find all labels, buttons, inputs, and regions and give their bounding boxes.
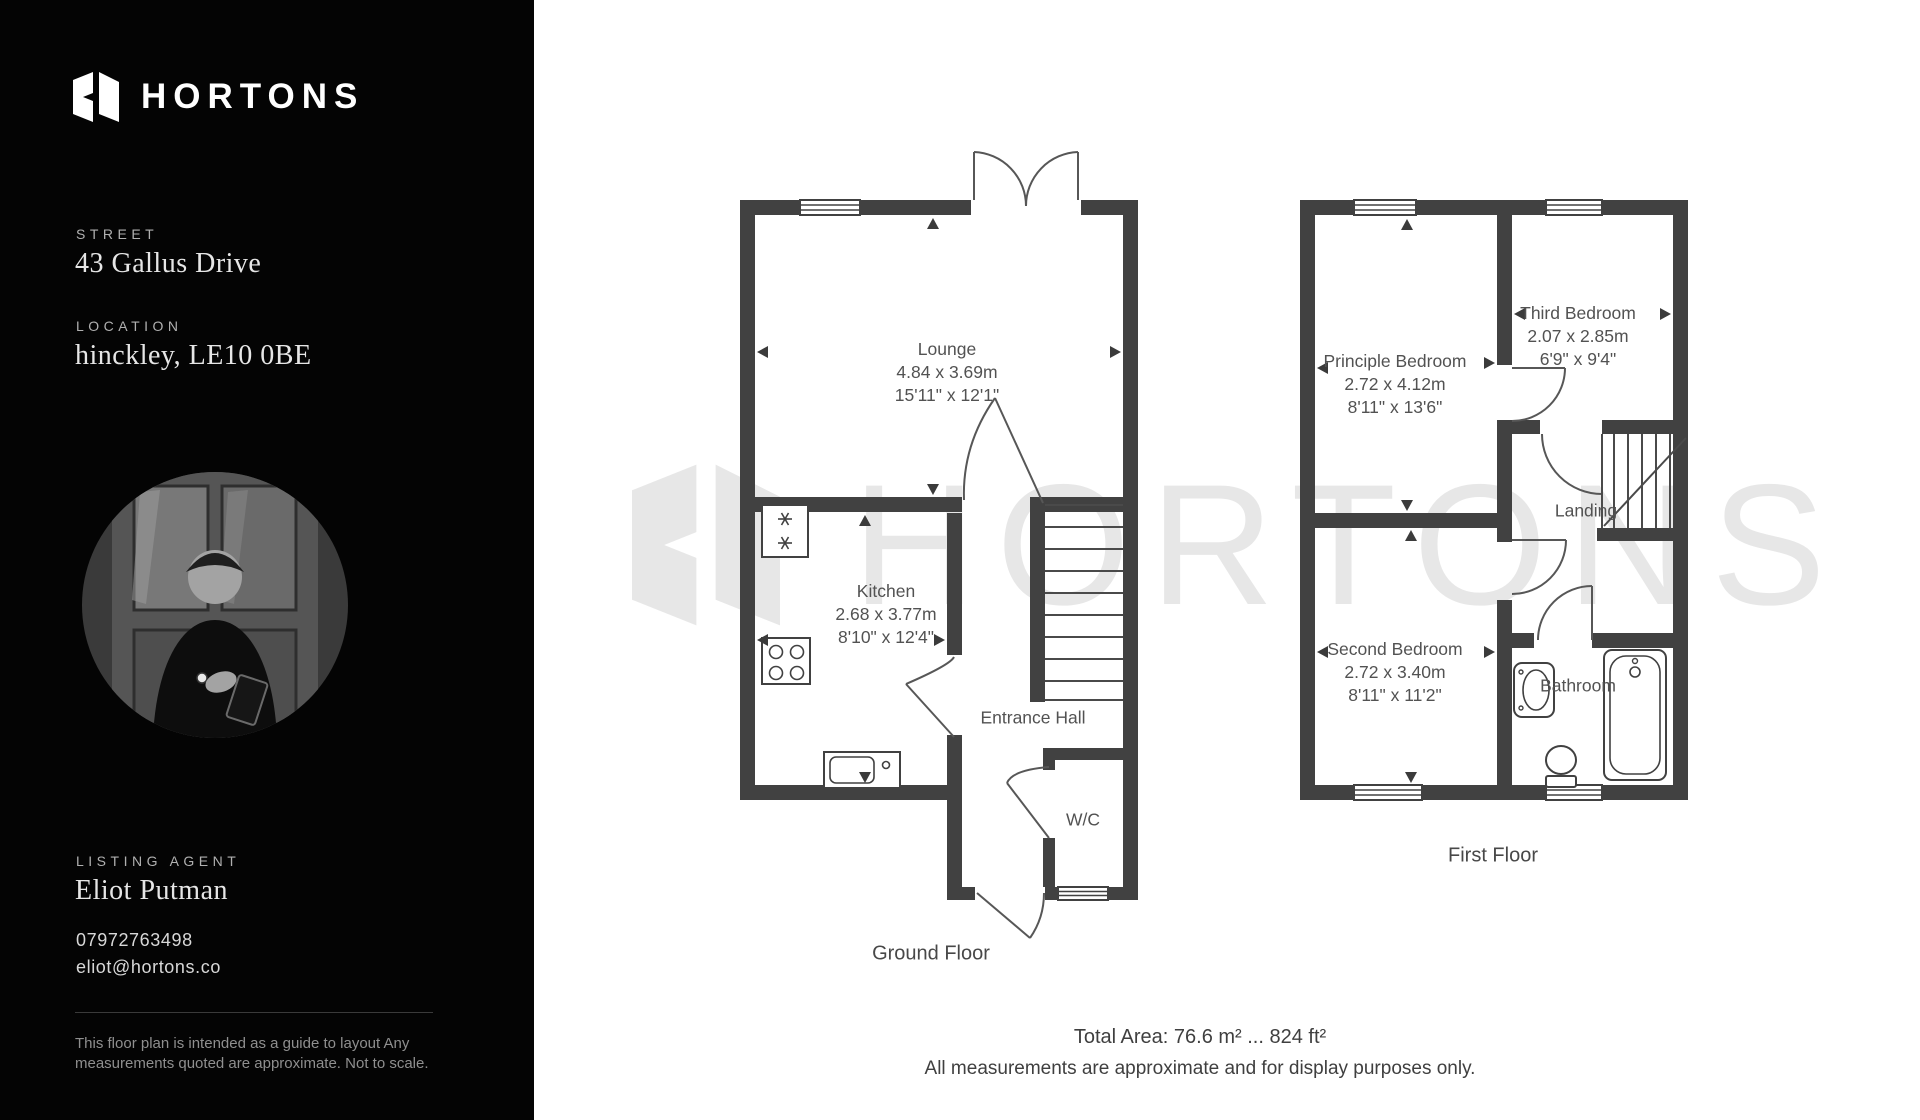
- room-label-bathroom: Bathroom: [1540, 675, 1616, 698]
- room-label-lounge: Lounge 4.84 x 3.69m 15'11" x 12'1": [895, 338, 999, 406]
- ground-floor-title: Ground Floor: [872, 943, 990, 966]
- sidebar-divider: [75, 1012, 433, 1013]
- fridge-freezer-icon: [762, 505, 808, 557]
- room-label-second-bedroom: Second Bedroom 2.72 x 3.40m 8'11" x 11'2…: [1327, 638, 1462, 706]
- room-label-landing: Landing: [1555, 500, 1617, 523]
- room-dim-imperial: 8'11" x 13'6": [1324, 395, 1467, 418]
- agent-email: eliot@hortons.co: [76, 957, 221, 978]
- room-name: W/C: [1066, 809, 1100, 832]
- disclaimer: This floor plan is intended as a guide t…: [75, 1034, 429, 1075]
- room-name: Lounge: [895, 338, 999, 361]
- room-name: Kitchen: [835, 580, 936, 603]
- room-dim-imperial: 8'11" x 11'2": [1327, 683, 1462, 706]
- total-area-text: Total Area: 76.6 m² ... 824 ft²: [860, 1026, 1540, 1049]
- room-dim-metric: 2.07 x 2.85m: [1520, 325, 1636, 348]
- door-swing: [906, 152, 1078, 938]
- agent-photo: [82, 472, 348, 738]
- measurements-note: All measurements are approximate and for…: [860, 1058, 1540, 1080]
- room-label-wc: W/C: [1066, 809, 1100, 832]
- location-value: hinckley, LE10 0BE: [75, 340, 312, 372]
- room-dim-imperial: 15'11" x 12'1": [895, 383, 999, 406]
- room-dim-imperial: 6'9" x 9'4": [1520, 347, 1636, 370]
- footer-note: Total Area: 76.6 m² ... 824 ft² All meas…: [860, 1026, 1540, 1080]
- room-dim-imperial: 8'10" x 12'4": [835, 625, 936, 648]
- agent-phone: 07972763498: [76, 930, 193, 951]
- room-label-principle-bedroom: Principle Bedroom 2.72 x 4.12m 8'11" x 1…: [1324, 350, 1467, 418]
- room-dim-metric: 2.68 x 3.77m: [835, 603, 936, 626]
- first-floor-plan: [1280, 190, 1700, 810]
- brand-logo: HORTONS: [73, 72, 364, 122]
- room-name: Principle Bedroom: [1324, 350, 1467, 373]
- room-name: Entrance Hall: [980, 707, 1085, 730]
- room-label-entrance-hall: Entrance Hall: [980, 707, 1085, 730]
- room-name: Landing: [1555, 500, 1617, 523]
- kitchen-sink-icon: [824, 752, 900, 788]
- street-label: STREET: [76, 226, 158, 242]
- floorplan-flyer: HORTONS: [0, 0, 1920, 1120]
- room-label-kitchen: Kitchen 2.68 x 3.77m 8'10" x 12'4": [835, 580, 936, 648]
- first-floor-title: First Floor: [1448, 845, 1538, 868]
- disclaimer-line1: This floor plan is intended as a guide t…: [75, 1034, 429, 1054]
- toilet-icon: [1546, 746, 1576, 787]
- sidebar: HORTONS STREET 43 Gallus Drive LOCATION …: [0, 0, 534, 1120]
- room-name: Third Bedroom: [1520, 302, 1636, 325]
- room-dim-metric: 2.72 x 3.40m: [1327, 661, 1462, 684]
- agent-photo-image: [82, 472, 348, 738]
- disclaimer-line2: measurements quoted are approximate. Not…: [75, 1054, 429, 1074]
- room-name: Bathroom: [1540, 675, 1616, 698]
- room-dim-metric: 2.72 x 4.12m: [1324, 373, 1467, 396]
- bathtub-icon: [1604, 650, 1666, 780]
- hortons-logo-icon: [73, 72, 119, 122]
- hob-icon: [762, 638, 810, 684]
- location-label: LOCATION: [76, 318, 183, 334]
- room-name: Second Bedroom: [1327, 638, 1462, 661]
- street-value: 43 Gallus Drive: [75, 248, 261, 280]
- room-label-third-bedroom: Third Bedroom 2.07 x 2.85m 6'9" x 9'4": [1520, 302, 1636, 370]
- ground-floor-plan: [700, 130, 1170, 960]
- listing-agent-label: LISTING AGENT: [76, 853, 240, 869]
- stairs: [1045, 505, 1123, 700]
- listing-agent-name: Eliot Putman: [75, 875, 228, 907]
- brand-name: HORTONS: [141, 77, 364, 117]
- room-dim-metric: 4.84 x 3.69m: [895, 361, 999, 384]
